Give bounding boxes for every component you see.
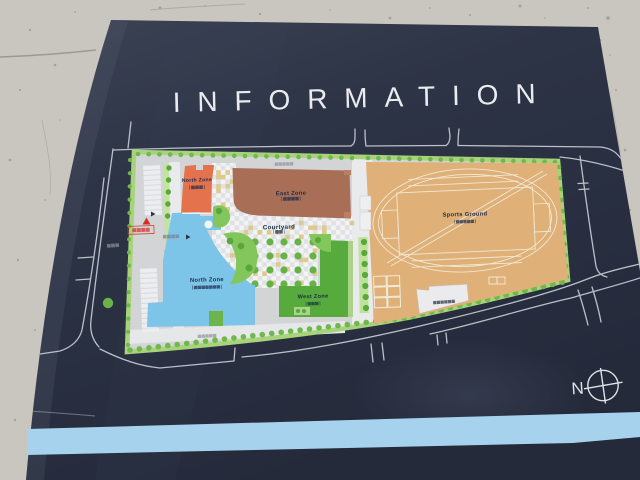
svg-text:Sports Ground: Sports Ground bbox=[443, 211, 488, 218]
svg-text:East Zone: East Zone bbox=[276, 191, 307, 198]
svg-text:West Zone: West Zone bbox=[298, 294, 329, 301]
svg-text:North Zone: North Zone bbox=[190, 277, 225, 284]
svg-text:Courtyard: Courtyard bbox=[263, 224, 295, 232]
svg-text:N: N bbox=[571, 379, 585, 399]
svg-text:North Zone: North Zone bbox=[182, 177, 212, 184]
